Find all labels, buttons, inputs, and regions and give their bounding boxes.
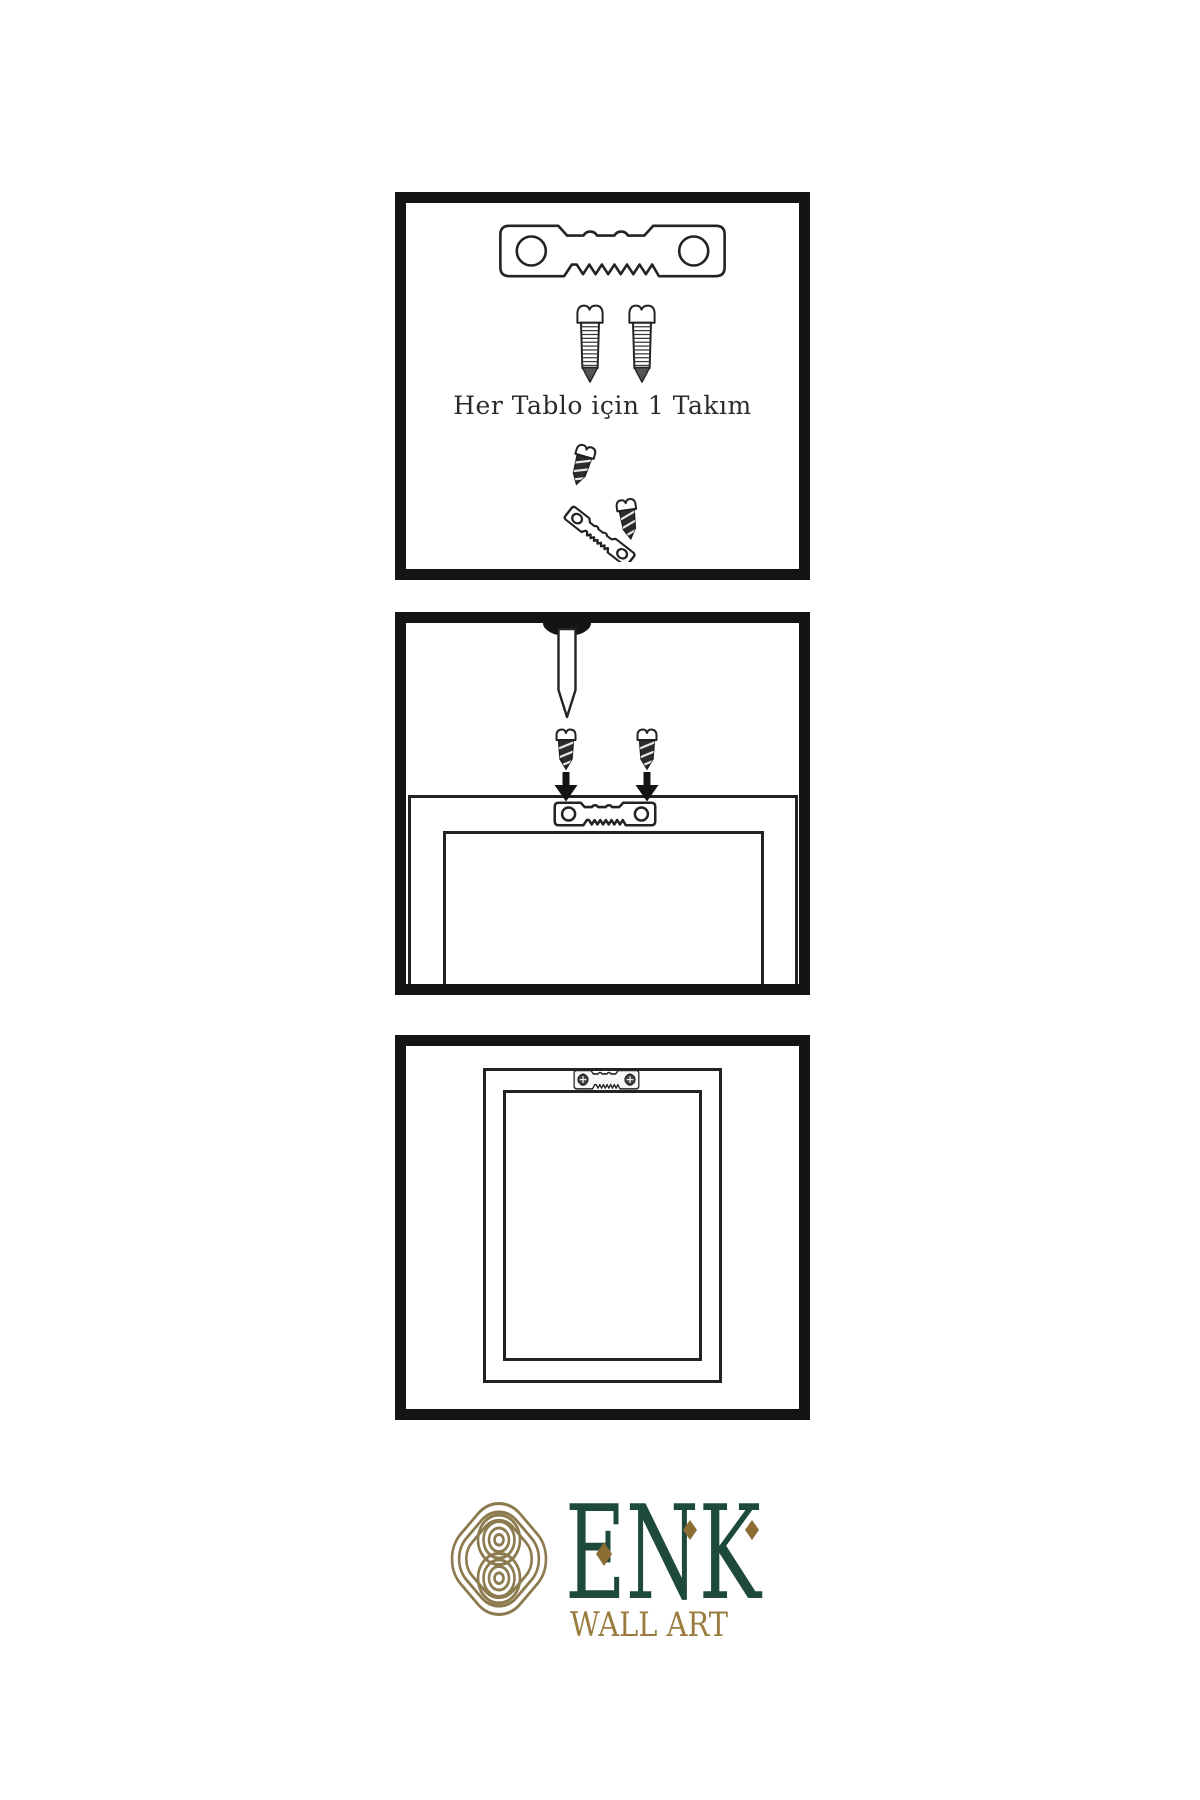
screw-icon — [624, 300, 660, 385]
diamond-accent-icon — [745, 1520, 759, 1540]
down-arrow-icon — [552, 772, 580, 802]
screw-icon — [634, 726, 660, 772]
panel-mounted-frame — [395, 1035, 810, 1420]
knot-emblem-icon — [440, 1488, 558, 1630]
diamond-accent-icon — [683, 1520, 697, 1540]
phillips-screw-head-icon — [578, 1074, 588, 1084]
panel-hardware-kit: Her Tablo için 1 Takım — [395, 192, 810, 580]
brand-tagline: WALL ART — [570, 1604, 732, 1646]
brand-logo: ENK WALL ART — [430, 1482, 800, 1657]
panel-wall-mounting — [395, 612, 810, 995]
diamond-accent-icon — [596, 1542, 612, 1566]
screw-icon — [572, 300, 608, 385]
sawtooth-hanger-icon — [553, 801, 657, 827]
frame-canvas-edge — [443, 831, 764, 984]
sawtooth-hanger-icon — [495, 222, 730, 280]
screw-icon — [553, 726, 579, 772]
panel1-caption: Her Tablo için 1 Takım — [406, 391, 799, 420]
instruction-sheet: Her Tablo için 1 Takım — [0, 0, 1200, 1800]
mounted-sawtooth-hanger-icon — [573, 1069, 640, 1091]
frame-canvas-edge — [503, 1090, 702, 1361]
nail-icon — [552, 628, 582, 720]
phillips-screw-head-icon — [625, 1074, 635, 1084]
svg-text:ENK: ENK — [565, 1498, 763, 1608]
brand-name: ENK — [565, 1498, 765, 1608]
down-arrow-icon — [633, 772, 661, 802]
svg-text:WALL ART: WALL ART — [570, 1605, 728, 1645]
screw-hanger-assembly-icon — [551, 440, 671, 562]
